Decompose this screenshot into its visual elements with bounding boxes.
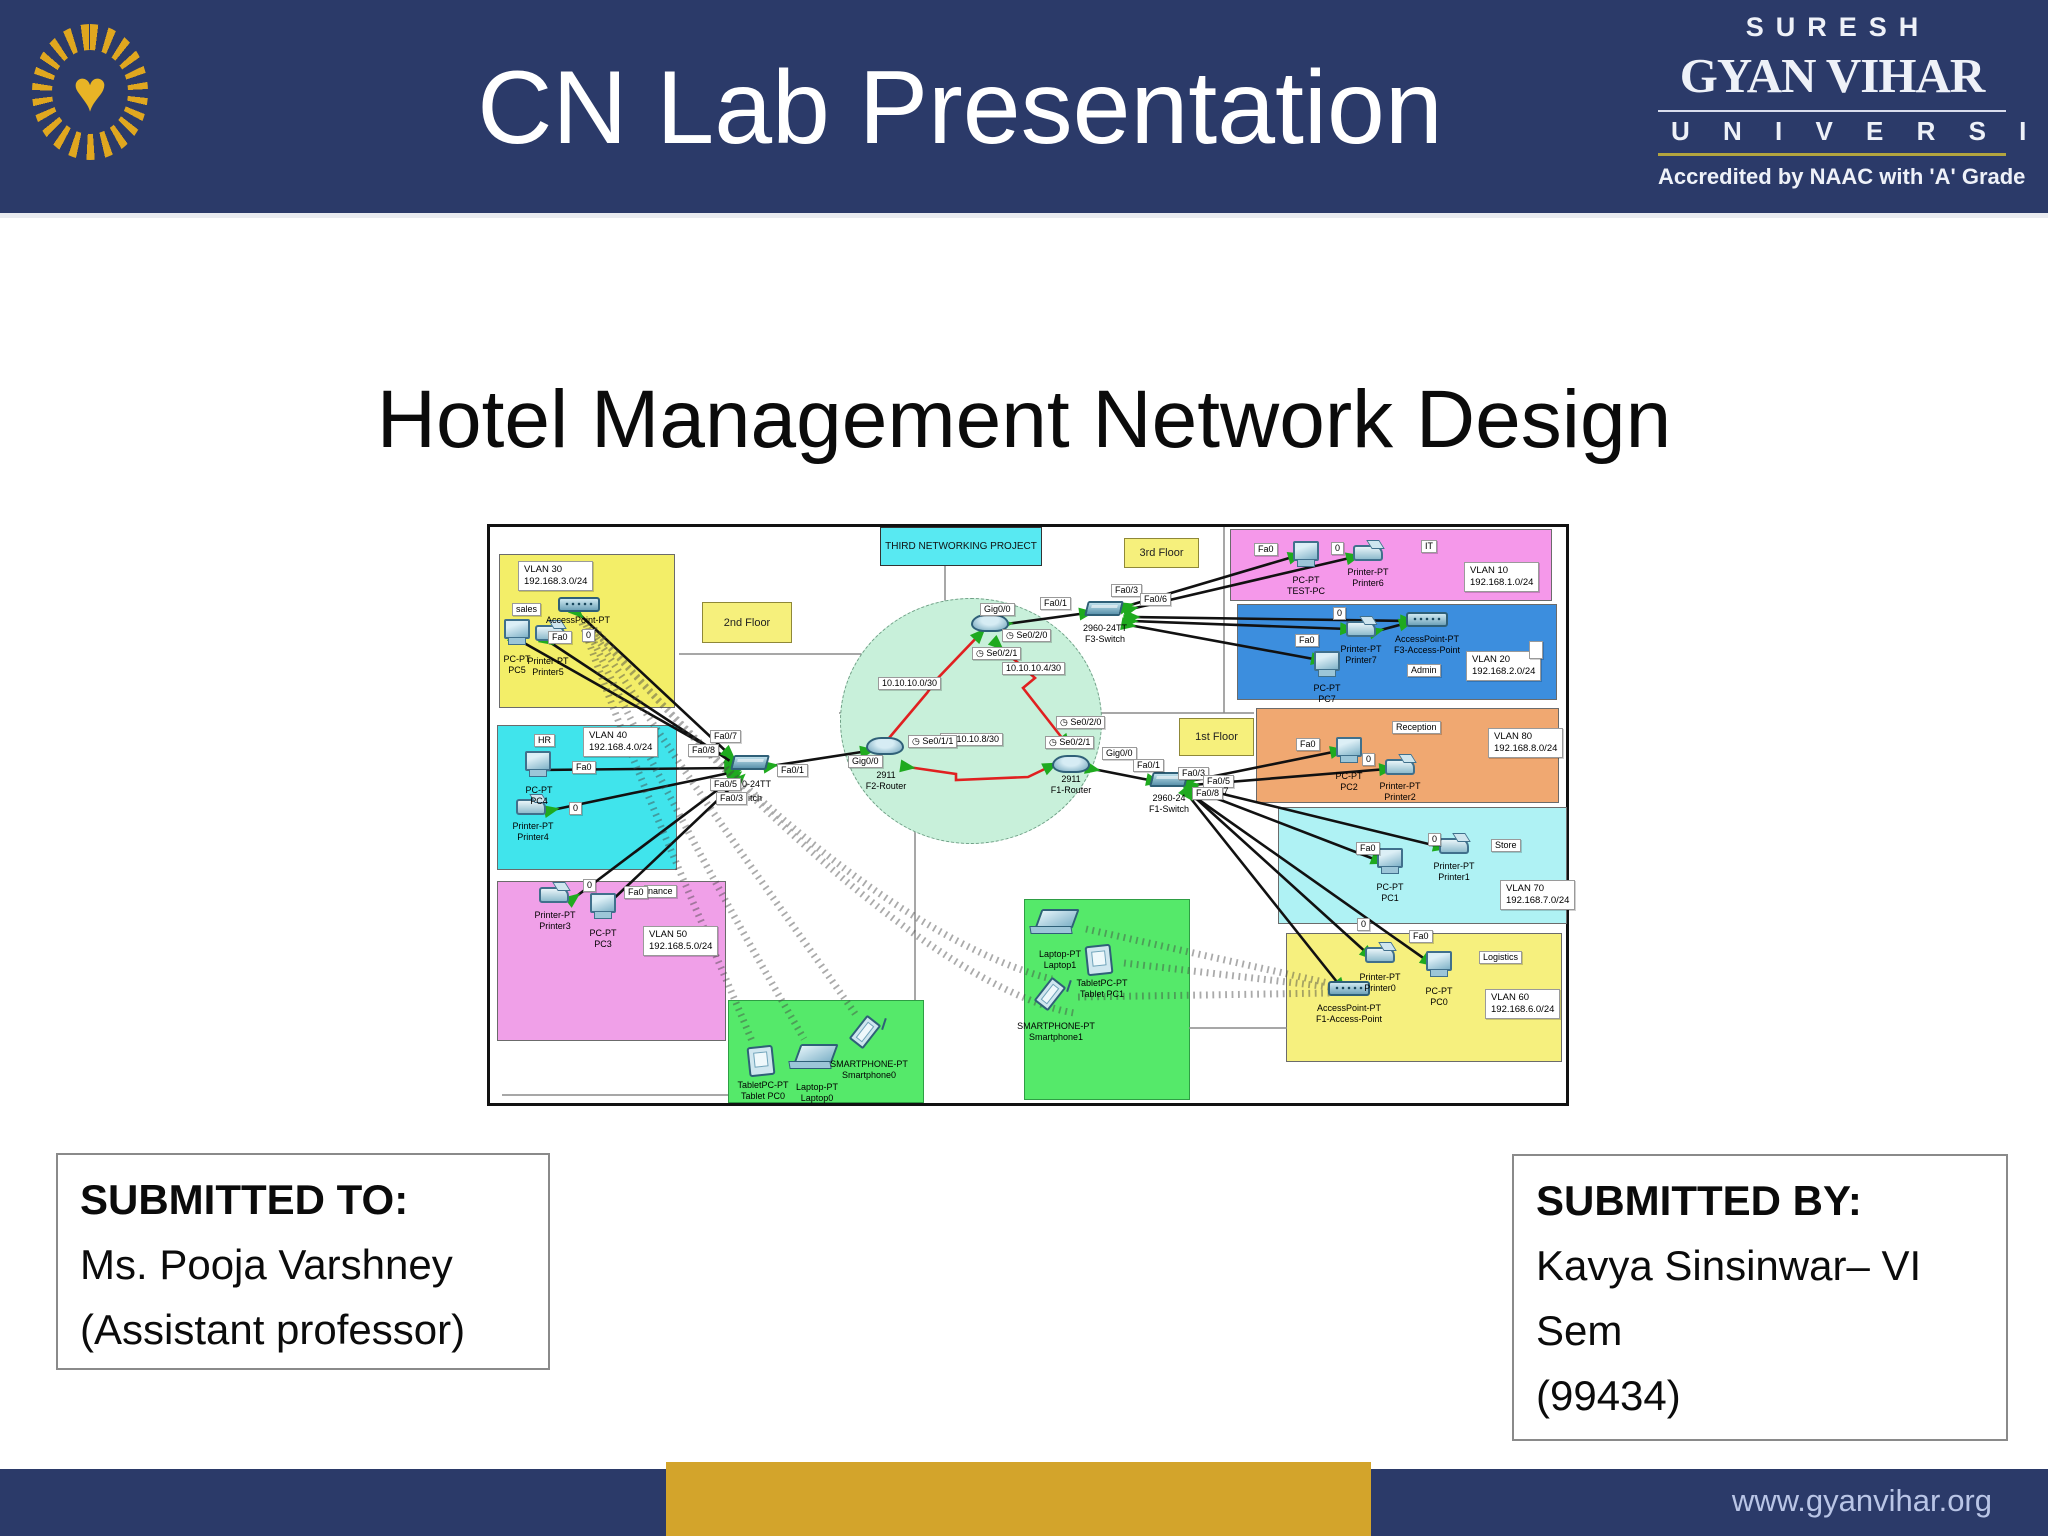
university-brand-block: SURESH GYAN VIHAR U N I V E R S I T Y Ac… — [1658, 12, 2006, 190]
port-f3sw-fa03: Fa0/3 — [1111, 584, 1142, 597]
dept-label-admin: Admin — [1407, 664, 1441, 677]
printer4-caption: Printer-PT Printer4 — [493, 821, 573, 842]
link-lines — [490, 527, 1566, 1103]
f3-access-point-icon — [1406, 612, 1448, 627]
port-pctest-fa0: Fa0 — [1254, 543, 1278, 556]
port-f1sw-7: 7 — [1218, 786, 1234, 797]
dept-label-reception: Reception — [1392, 721, 1441, 734]
submitted-by-sem: Sem — [1536, 1298, 1984, 1363]
net-label-1: 10.10.10.0/30 — [878, 677, 941, 690]
f3-access-point-caption: AccessPoint-PT F3-Access-Point — [1387, 634, 1467, 655]
dept-label-store: Store — [1491, 839, 1521, 852]
accesspoint-vlan30-caption: AccessPoint-PT — [538, 615, 618, 626]
port-printer0-0: 0 — [1357, 918, 1370, 931]
port-printer3-0: 0 — [583, 879, 596, 892]
port-f3r-se021: Se0/2/1 — [972, 647, 1021, 660]
submitted-by-name: Kavya Sinsinwar– VI — [1536, 1233, 1984, 1298]
f3-switch-caption: 2960-24TT F3-Switch — [1065, 623, 1145, 644]
port-f2sw-fa03: Fa0/3 — [716, 792, 747, 805]
submitted-by-heading: SUBMITTED BY: — [1536, 1168, 1984, 1233]
port-pc2-fa0: Fa0 — [1296, 738, 1320, 751]
test-pc-icon — [1293, 541, 1319, 561]
brand-accreditation: Accredited by NAAC with 'A' Grade — [1658, 164, 2006, 190]
pc2-icon — [1336, 737, 1362, 757]
vlan60-info: VLAN 60 192.168.6.0/24 — [1485, 989, 1560, 1019]
smartphone0-caption: SMARTPHONE-PT Smartphone0 — [829, 1059, 909, 1080]
vlan80-info: VLAN 80 192.168.8.0/24 — [1488, 728, 1563, 758]
submitted-by-box: SUBMITTED BY: Kavya Sinsinwar– VI Sem (9… — [1512, 1154, 2008, 1441]
f1-router-caption: 2911 F1-Router — [1031, 774, 1111, 795]
port-f2r-se011: Se0/1/1 — [908, 735, 957, 748]
heart-icon: ♥ — [73, 63, 107, 121]
pc3-caption: PC-PT PC3 — [563, 928, 643, 949]
submitted-to-name: Ms. Pooja Varshney — [80, 1232, 526, 1297]
port-f3sw-fa01: Fa0/1 — [1040, 597, 1071, 610]
printer6-icon — [1353, 545, 1383, 561]
net-label-2: 10.10.10.4/30 — [1002, 662, 1065, 675]
printer7-icon — [1346, 621, 1376, 637]
pc4-caption: PC-PT PC4 — [499, 785, 579, 806]
port-f3r-se020: Se0/2/0 — [1002, 629, 1051, 642]
f2-switch-name-frag1: 0-24TT — [742, 779, 782, 790]
printer1-caption: Printer-PT Printer1 — [1414, 861, 1494, 882]
port-pc7-fa0: Fa0 — [1295, 634, 1319, 647]
printer2-caption: Printer-PT Printer2 — [1360, 781, 1440, 802]
port-printer7-0: 0 — [1333, 607, 1346, 620]
port-f1sw-fa01: Fa0/1 — [1133, 759, 1164, 772]
header-bar: ♥ CN Lab Presentation SURESH GYAN VIHAR … — [0, 0, 2048, 218]
pc1-caption: PC-PT PC1 — [1350, 882, 1430, 903]
dept-label-it: IT — [1421, 540, 1437, 553]
page-title: Hotel Management Network Design — [0, 372, 2048, 468]
port-printer2-0: 0 — [1362, 753, 1375, 766]
pc1-icon — [1377, 848, 1403, 868]
port-f2sw-fa05: Fa0/5 — [710, 778, 741, 791]
port-f2sw-fa08: Fa0/8 — [688, 744, 719, 757]
printer0-icon — [1365, 947, 1395, 963]
f2-switch-name-frag2: itch — [748, 793, 778, 804]
port-f2sw-fa07: Fa0/7 — [710, 730, 741, 743]
tablet0-icon — [747, 1045, 776, 1078]
vlan10-info: VLAN 10 192.168.1.0/24 — [1464, 562, 1539, 592]
f3-switch-icon — [1084, 601, 1124, 616]
printer6-caption: Printer-PT Printer6 — [1328, 567, 1408, 588]
submitted-by-id: (99434) — [1536, 1363, 1984, 1428]
laptop0-caption: Laptop-PT Laptop0 — [777, 1082, 857, 1103]
port-f2r-gig00: Gig0/0 — [848, 755, 883, 768]
logo-core: ♥ — [52, 50, 128, 134]
port-printer1-0: 0 — [1428, 833, 1441, 846]
vlan30-info: VLAN 30 192.168.3.0/24 — [518, 561, 593, 591]
port-pc1-fa0: Fa0 — [1356, 842, 1380, 855]
submitted-to-role: (Assistant professor) — [80, 1297, 526, 1362]
small-note-box — [1529, 641, 1543, 659]
smartphone1-caption: SMARTPHONE-PT Smartphone1 — [1016, 1021, 1096, 1042]
brand-suresh: SURESH — [1658, 12, 2006, 43]
port-f3r-gig00: Gig0/0 — [980, 603, 1015, 616]
port-printer6-0: 0 — [1331, 542, 1344, 555]
port-pc0-fa0: Fa0 — [1409, 930, 1433, 943]
port-f1r-gig00: Gig0/0 — [1102, 747, 1137, 760]
dept-label-sales: sales — [512, 603, 541, 616]
footer-website-link: www.gyanvihar.org — [1732, 1483, 1992, 1519]
pc5-icon — [504, 619, 530, 639]
brand-gyan-vihar: GYAN VIHAR — [1658, 47, 2006, 104]
brand-university: U N I V E R S I T Y — [1658, 110, 2006, 156]
port-f1r-se021: Se0/2/1 — [1045, 736, 1094, 749]
dept-label-finance: nance — [644, 885, 677, 898]
vlan40-info: VLAN 40 192.168.4.0/24 — [583, 727, 658, 757]
accesspoint-vlan30-icon — [558, 597, 600, 612]
f2-router-caption: 2911 F2-Router — [846, 770, 926, 791]
tablet1-caption: TabletPC-PT Tablet PC1 — [1062, 978, 1142, 999]
header-title: CN Lab Presentation — [340, 48, 1580, 168]
port-pc4-fa0: Fa0 — [572, 761, 596, 774]
submitted-to-heading: SUBMITTED TO: — [80, 1167, 526, 1232]
port-printer5-0: 0 — [582, 629, 595, 642]
f1-access-point-caption: AccessPoint-PT F1-Access-Point — [1309, 1003, 1389, 1024]
laptop1-icon — [1034, 909, 1079, 929]
port-f1r-se020: Se0/2/0 — [1056, 716, 1105, 729]
pc4-icon — [525, 751, 551, 771]
presentation-slide: ♥ CN Lab Presentation SURESH GYAN VIHAR … — [0, 0, 2048, 1536]
printer3-icon — [539, 887, 569, 903]
f1-switch-caption: 2960-24 F1-Switch — [1129, 793, 1209, 814]
network-diagram: THIRD NETWORKING PROJECT 2nd Floor 3rd F… — [487, 524, 1569, 1106]
pc0-caption: PC-PT PC0 — [1399, 986, 1479, 1007]
port-pc3-fa0: Fa0 — [624, 886, 648, 899]
f2-switch-icon — [730, 755, 770, 770]
port-f3sw-fa06: Fa0/6 — [1140, 593, 1171, 606]
dept-label-logistics: Logistics — [1479, 951, 1522, 964]
pc7-caption: PC-PT PC7 — [1287, 683, 1367, 704]
dept-label-hr: HR — [534, 734, 555, 747]
printer2-icon — [1385, 759, 1415, 775]
f1-router-icon — [1052, 755, 1090, 773]
port-f2sw-fa01: Fa0/1 — [777, 764, 808, 777]
vlan50-info: VLAN 50 192.168.5.0/24 — [643, 926, 718, 956]
vlan70-info: VLAN 70 192.168.7.0/24 — [1500, 880, 1575, 910]
pc0-icon — [1426, 951, 1452, 971]
laptop1-caption: Laptop-PT Laptop1 — [1020, 949, 1100, 970]
port-pc5-fa0: Fa0 — [548, 631, 572, 644]
f2-router-icon — [866, 737, 904, 755]
printer5-caption: Printer-PT Printer5 — [508, 656, 588, 677]
submitted-to-box: SUBMITTED TO: Ms. Pooja Varshney (Assist… — [56, 1153, 550, 1370]
university-sun-heart-logo-icon: ♥ — [32, 24, 148, 160]
footer-gold-block — [666, 1462, 1371, 1536]
printer1-icon — [1439, 838, 1469, 854]
